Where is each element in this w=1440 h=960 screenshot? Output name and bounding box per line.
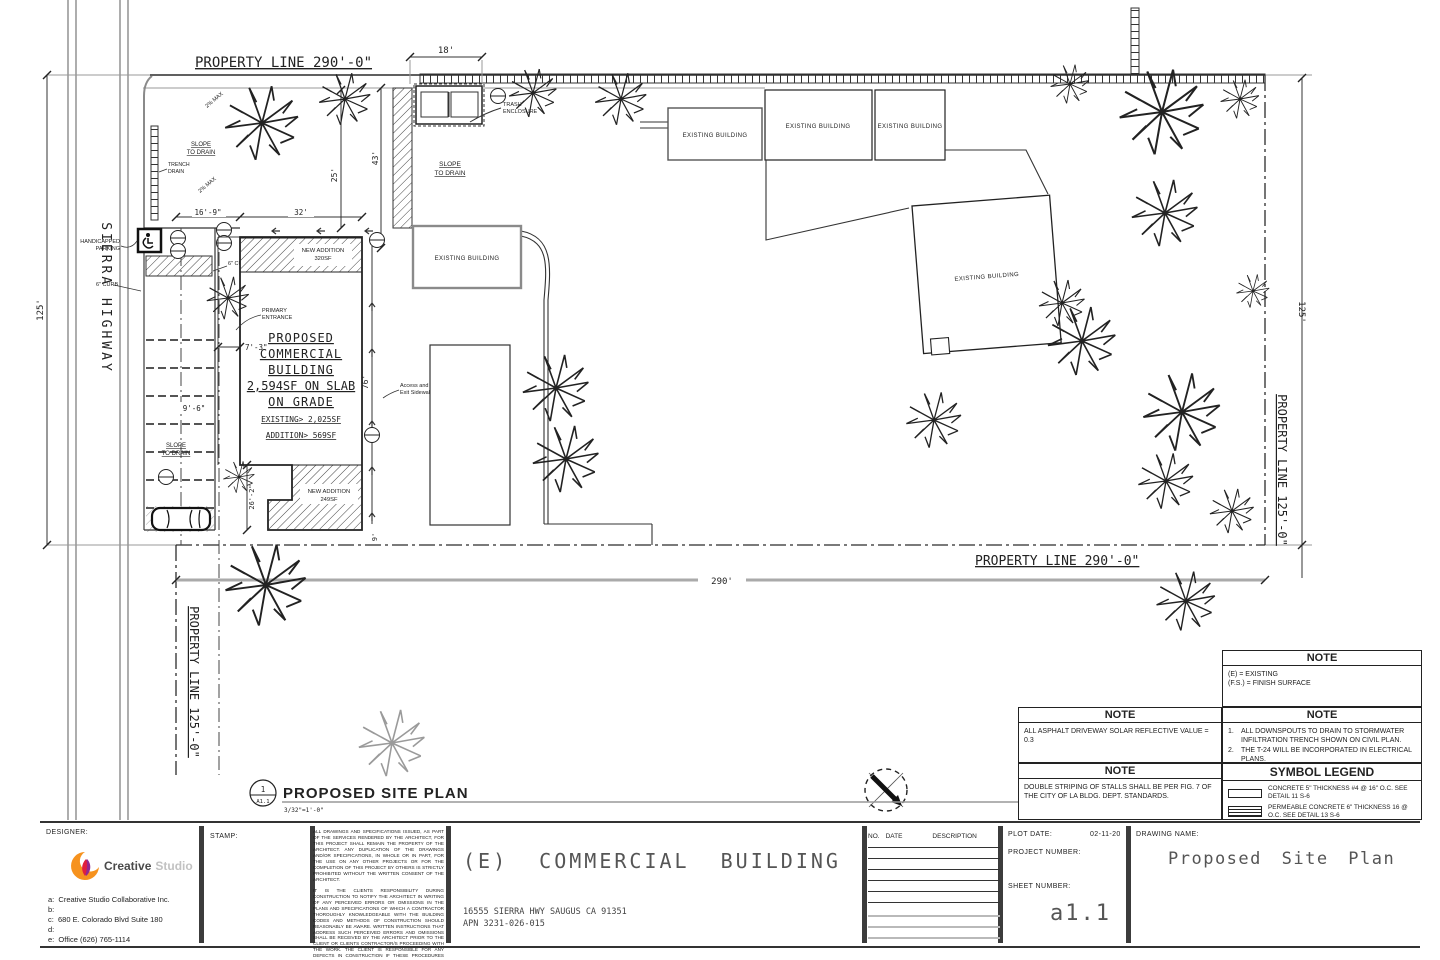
existing-building-label: EXISTING BUILDING (435, 256, 500, 262)
tree-icon (906, 392, 961, 447)
property-line-right-label: PROPERTY LINE 125'-0" (1275, 394, 1289, 546)
dim-76: 76' (361, 375, 370, 389)
designer-line: e: Office (626) 765-1114 (48, 935, 130, 944)
view-title: PROPOSED SITE PLAN (283, 785, 469, 802)
revision-row-line (868, 891, 1000, 892)
symbol-legend-header: SYMBOL LEGEND (1223, 764, 1421, 781)
leader-line (121, 241, 137, 247)
car-icon (152, 508, 210, 530)
north-arrow-icon (865, 769, 907, 811)
property-line-left-label: PROPERTY LINE 125'-0" (187, 606, 201, 758)
new-addition-bottom-label: 249SF (320, 497, 338, 503)
project-title: (E) COMMERCIAL BUILDING (463, 849, 841, 873)
tree-icon (359, 710, 425, 776)
designer-line: b: (48, 905, 54, 914)
property-lines (43, 71, 1312, 775)
project-apn: APN 3231-026-015 (463, 919, 545, 929)
designer-label: DESIGNER: (46, 829, 88, 836)
rev-description-header: DESCRIPTION (932, 833, 976, 840)
revision-row-line (868, 847, 1000, 848)
slope-to-drain-label: SLOPE (191, 142, 211, 148)
trees (207, 65, 1269, 776)
svg-text:ADDITION> 569SF: ADDITION> 569SF (266, 431, 337, 440)
divider (862, 826, 867, 943)
divider (446, 826, 451, 943)
disclaimer-text: ALL DRAWINGS AND SPECIFICATIONS ISSUED, … (313, 829, 444, 960)
concrete-swatch-icon (1228, 789, 1262, 798)
tree-icon (225, 86, 298, 160)
divider (199, 826, 204, 943)
trash-enclosure-label: ENCLOSURE (503, 109, 538, 115)
dim-9: 9' (371, 533, 379, 541)
note-asphalt: NOTE ALL ASPHALT DRIVEWAY SOLAR REFLECTI… (1018, 707, 1222, 763)
plot-date-label: PLOT DATE: (1008, 831, 1052, 838)
access-sidewalk-label: Access and (400, 383, 428, 389)
leader-line (383, 390, 399, 398)
primary-entrance-label: ENTRANCE (262, 315, 293, 321)
tree-icon (1051, 65, 1089, 104)
dim-290: 290' (711, 577, 733, 587)
svg-text:2,594SF ON SLAB: 2,594SF ON SLAB (247, 379, 355, 393)
legend-item: CONCRETE 5" THICKNESS #4 @ 16" O.C. SEE … (1268, 785, 1416, 802)
designer-line: a: Creative Studio Collaborative Inc. (48, 895, 170, 904)
trench-drain-label: TRENCH (168, 162, 190, 168)
tree-icon (226, 545, 306, 626)
slope-pct-label: 2% MAX (204, 91, 225, 110)
dim-18: 18' (438, 46, 454, 56)
note-header: NOTE (1223, 651, 1421, 666)
existing-building-label: EXISTING BUILDING (878, 124, 943, 130)
slope-to-drain-label: TO DRAIN (187, 150, 216, 156)
revision-row-line (868, 926, 1000, 928)
logo-word: Studio (155, 859, 192, 873)
designer-logo: CreativeStudio (70, 851, 193, 881)
slope-to-drain-label: TO DRAIN (435, 170, 466, 177)
drawing-name: Proposed Site Plan (1168, 849, 1395, 869)
svg-text:ON GRADE: ON GRADE (268, 395, 334, 409)
dim-16-9: 16'-9" (194, 208, 221, 217)
tree-icon (1236, 274, 1269, 307)
note-striping: NOTE DOUBLE STRIPING OF STALLS SHALL BE … (1018, 763, 1222, 820)
dim-26-2: 26'-2" (248, 484, 256, 509)
tree-icon (1143, 373, 1219, 450)
symbol-legend: SYMBOL LEGEND CONCRETE 5" THICKNESS #4 @… (1222, 763, 1422, 820)
trash-enclosure (414, 84, 506, 126)
new-addition-top-label: NEW ADDITION (302, 248, 345, 254)
note-header: NOTE (1019, 708, 1221, 723)
disclaimer-paragraph: ALL DRAWINGS AND SPECIFICATIONS ISSUED, … (313, 829, 444, 883)
slope-to-drain-label: TO DRAIN (162, 451, 191, 457)
drawing-name-label: DRAWING NAME: (1136, 831, 1199, 838)
revision-row-line (868, 858, 1000, 859)
property-line-bottom-label: PROPERTY LINE 290'-0" (975, 554, 1139, 569)
sheet-number: a1.1 (1050, 901, 1111, 926)
svg-text:BUILDING: BUILDING (268, 363, 334, 377)
site-plan-sheet: SIERRA HIGHWAY PROPERTY LINE 290'-0" PRO… (0, 0, 1440, 960)
existing-buildings (413, 90, 1061, 356)
designer-line: c: 680 E. Colorado Blvd Suite 180 (48, 915, 163, 924)
tree-icon (1138, 453, 1193, 508)
svg-text:COMMERCIAL: COMMERCIAL (260, 347, 342, 361)
note-abbreviations: NOTE (E) = EXISTING (F.S.) = FINISH SURF… (1222, 650, 1422, 707)
trash-enclosure-label: TRASH (503, 102, 522, 108)
title-block: DESIGNER: CreativeStudio a: Creative Stu… (40, 821, 1420, 948)
note-header: NOTE (1223, 708, 1421, 723)
new-addition-bottom-label: NEW ADDITION (308, 489, 351, 495)
revision-row-line (868, 869, 1000, 870)
new-addition-top-label: 320SF (314, 256, 332, 262)
note-downspouts: NOTE 1.ALL DOWNSPOUTS TO DRAIN TO STORMW… (1222, 707, 1422, 763)
note-abbrev-line: (E) = EXISTING (1228, 670, 1416, 679)
dim-125-right: 125' (1296, 301, 1306, 323)
dim-25: 25' (330, 168, 339, 182)
yard-dims (337, 84, 412, 252)
rev-no-header: NO. (868, 833, 880, 840)
sheet-number-label: SHEET NUMBER: (1008, 883, 1071, 890)
stamp-label: STAMP: (210, 833, 238, 840)
rev-date-header: DATE (886, 833, 903, 840)
revision-row-line (868, 915, 1000, 917)
trench-drain (151, 126, 158, 220)
dim-9-6: 9'-6" (183, 404, 206, 413)
tree-icon (1221, 80, 1259, 119)
disclaimer-paragraph: IT IS THE CLIENTS RESPONSIBILITY DURING … (313, 888, 444, 960)
note-item: ALL DOWNSPOUTS TO DRAIN TO STORMWATER IN… (1241, 727, 1416, 746)
handicapped-parking-label: HANDICAPPED (80, 239, 120, 245)
tree-icon (523, 355, 589, 421)
note-asphalt-text: ALL ASPHALT DRIVEWAY SOLAR REFLECTIVE VA… (1019, 723, 1221, 750)
existing-building-label: EXISTING BUILDING (786, 124, 851, 130)
revision-row-line (868, 902, 1000, 903)
creative-studio-logo-icon (70, 851, 100, 881)
slope-pct-label: 2% MAX (197, 176, 218, 195)
fence-band (143, 8, 1265, 88)
handicap-icon (138, 229, 161, 252)
dim-7-3: 7'-3" (245, 343, 268, 352)
project-address: 16555 SIERRA HWY SAUGUS CA 91351 (463, 907, 627, 917)
tree-icon (319, 73, 370, 125)
svg-text:EXISTING> 2,025SF: EXISTING> 2,025SF (261, 415, 341, 424)
revision-row-line (868, 937, 1000, 939)
tree-icon (1132, 180, 1198, 246)
divider (1126, 826, 1131, 943)
slope-to-drain-label: SLOPE (439, 161, 461, 168)
handicapped-parking-label: PARKING (96, 246, 120, 252)
access-sidewalk-label: Exit Sidewalk (400, 390, 433, 396)
note-item: THE T-24 WILL BE INCORPORATED IN ELECTRI… (1241, 746, 1416, 765)
view-scale: 3/32"=1'-0" (284, 807, 324, 814)
view-marker-number: 1 (261, 785, 266, 794)
existing-building-label: EXISTING BUILDING (683, 133, 748, 139)
tree-icon (533, 426, 599, 492)
dim-32: 32' (294, 208, 308, 217)
revision-header: NO. DATE DESCRIPTION (868, 833, 977, 840)
project-number-label: PROJECT NUMBER: (1008, 849, 1081, 856)
designer-line: d: (48, 925, 54, 934)
plot-date-value: 02-11-20 (1090, 831, 1121, 838)
slope-to-drain-label: SLOPE (166, 443, 186, 449)
legend-item: PERMEABLE CONCRETE 6" THICKNESS 16 @ O.C… (1268, 804, 1416, 821)
logo-word: Creative (104, 859, 151, 873)
leader-line (159, 169, 167, 172)
primary-entrance-label: PRIMARY (262, 308, 287, 314)
tree-icon (1210, 489, 1254, 533)
note-header: NOTE (1019, 764, 1221, 779)
trench-drain-label: DRAIN (168, 169, 184, 175)
view-marker-sheet: A1.1 (256, 799, 269, 805)
dim-125-left: 125' (36, 299, 46, 321)
note-abbrev-line: (F.S.) = FINISH SURFACE (1228, 679, 1416, 688)
note-striping-text: DOUBLE STRIPING OF STALLS SHALL BE PER F… (1019, 779, 1221, 806)
svg-text:PROPOSED: PROPOSED (268, 331, 334, 345)
revision-row-line (868, 880, 1000, 881)
dim-43: 43' (371, 151, 380, 165)
property-line-top-label: PROPERTY LINE 290'-0" (195, 55, 372, 71)
road-sierra-highway (68, 0, 128, 820)
permeable-concrete-swatch-icon (1228, 806, 1262, 817)
